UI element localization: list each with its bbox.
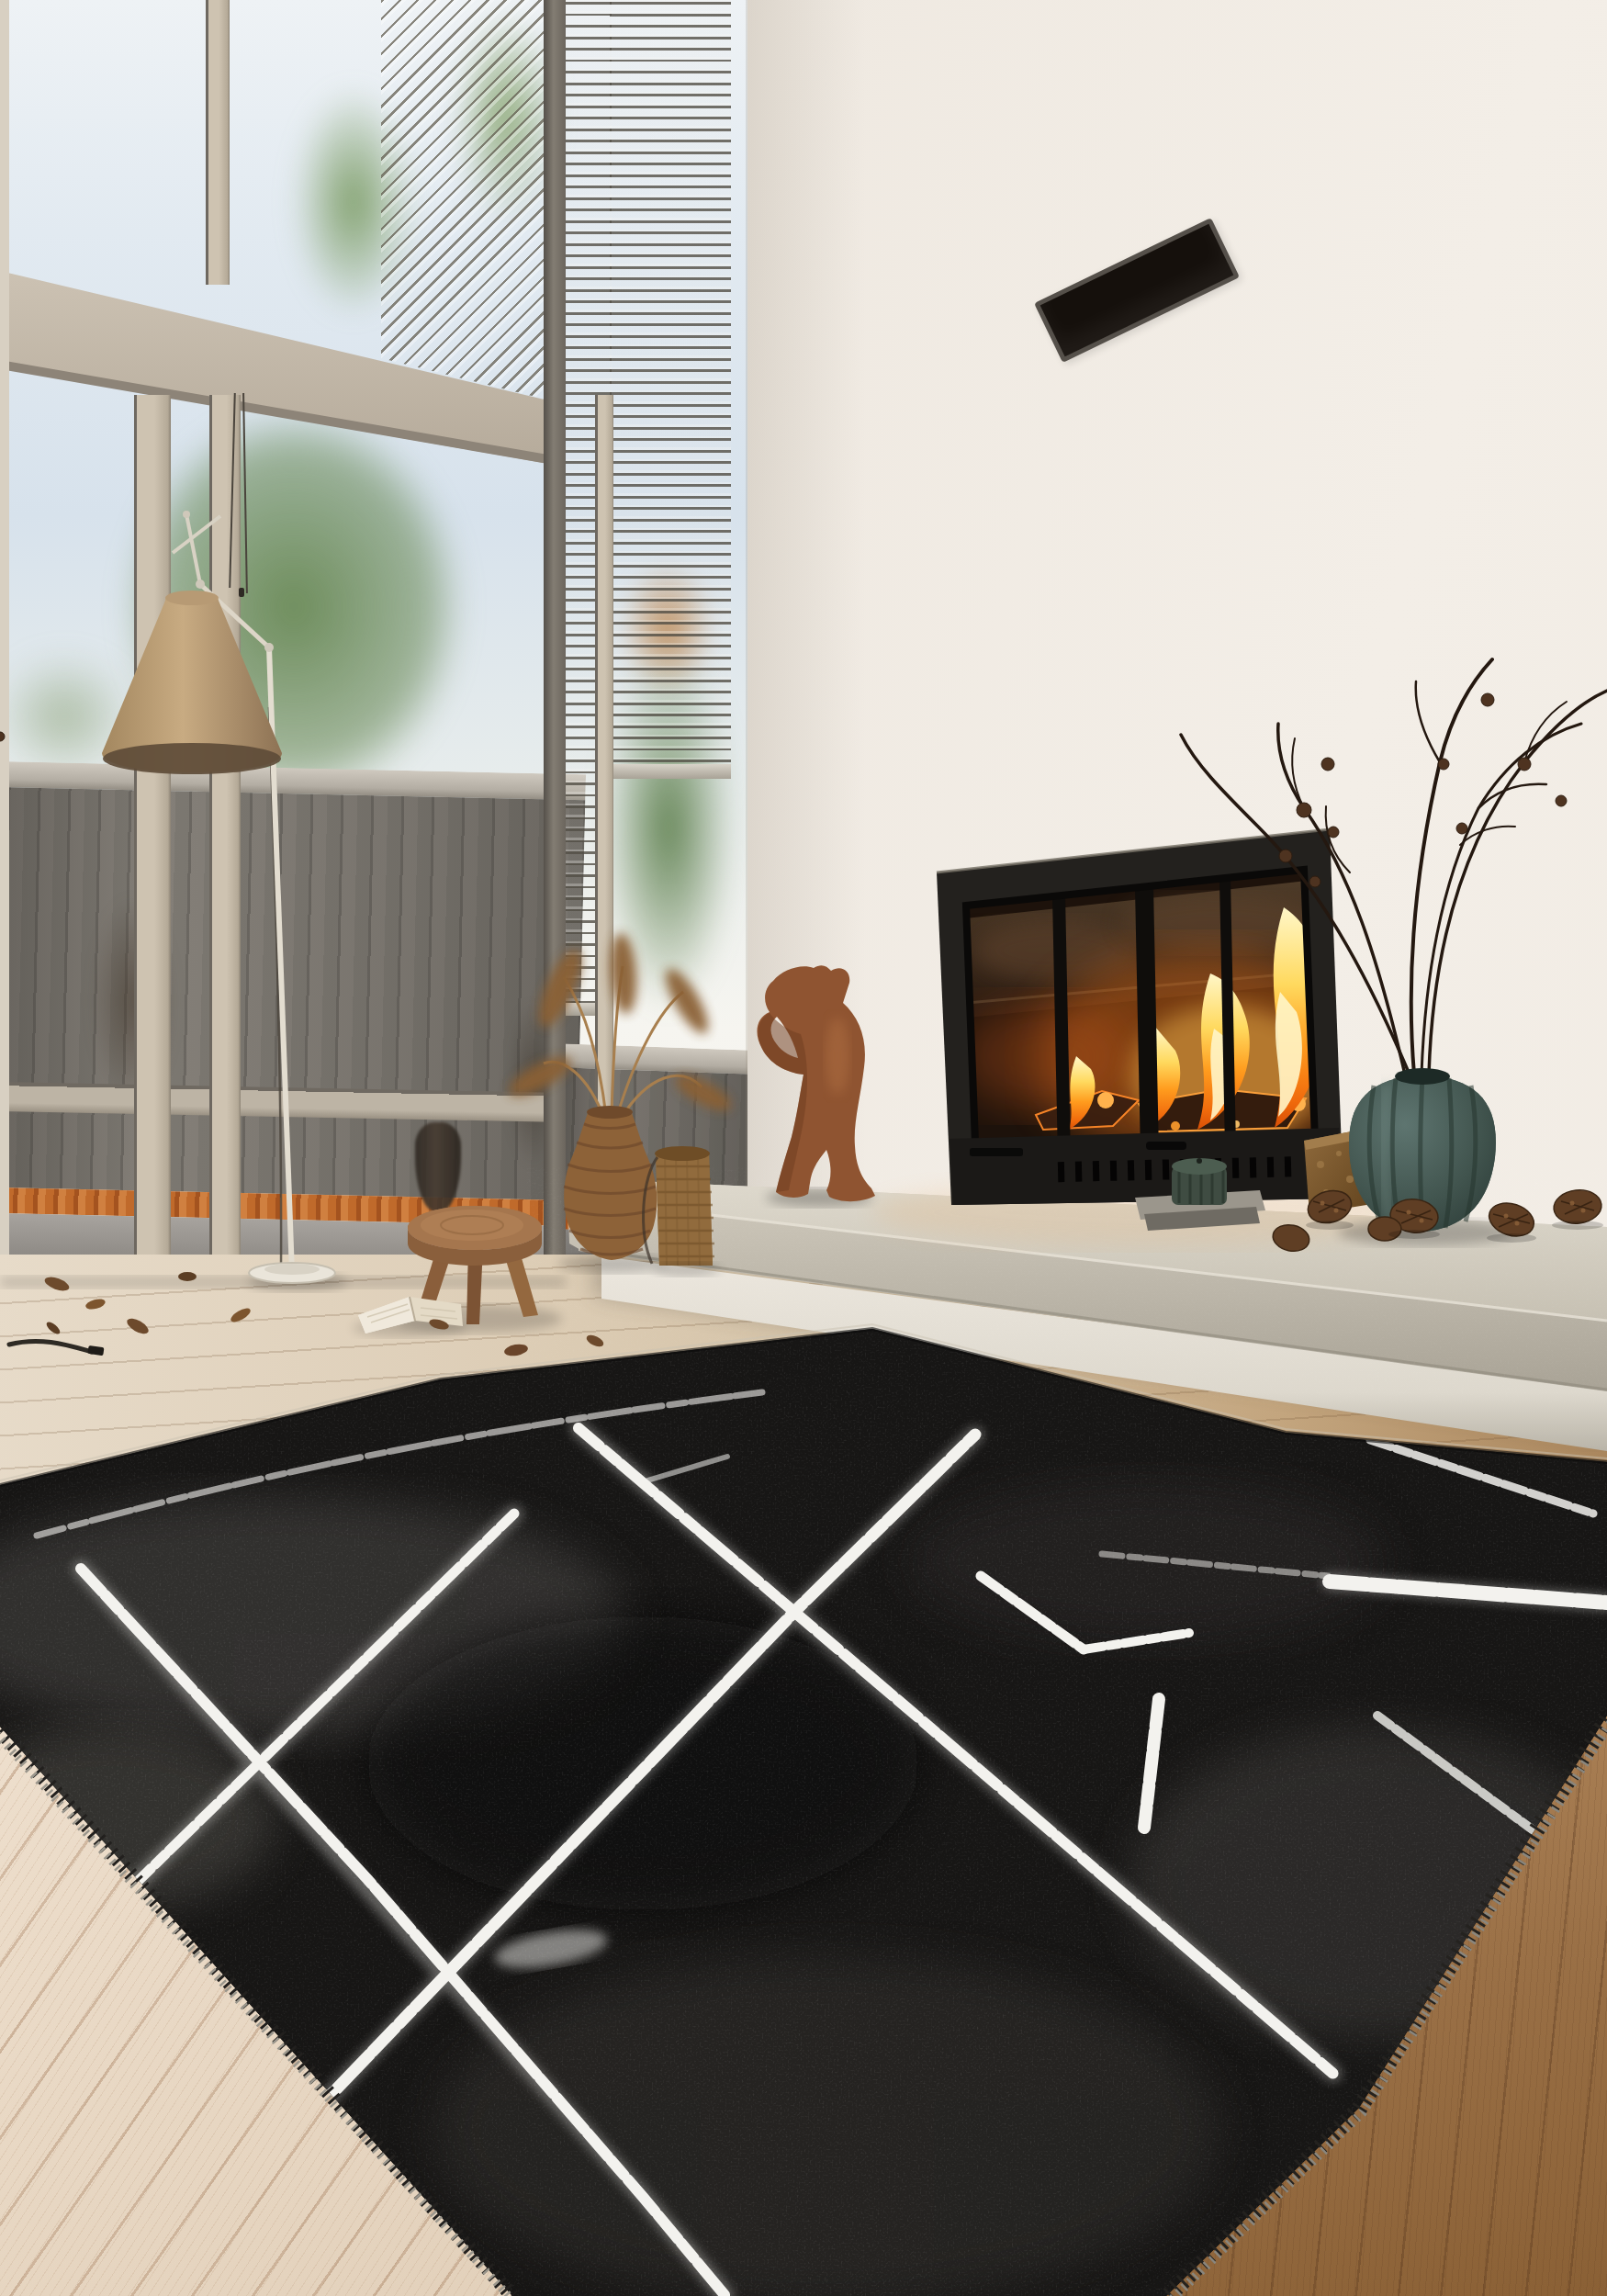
blind-cord-bead xyxy=(239,588,244,597)
fireplace-glass-bevel xyxy=(966,870,1315,1166)
stone-slab-2 xyxy=(1144,1207,1260,1231)
base-left-slot xyxy=(970,1148,1023,1156)
mullion-lower-b xyxy=(209,395,241,1278)
base-vent-slots xyxy=(1058,1156,1291,1182)
window-frame-right xyxy=(728,0,747,1282)
fireplace-frame-highlight xyxy=(937,829,1330,872)
flames xyxy=(1069,907,1362,1130)
fence-planks-right xyxy=(555,1067,747,1213)
dry-branches xyxy=(1181,659,1607,1075)
vase-highlight xyxy=(1382,1084,1390,1223)
blinds-diagonal-corner xyxy=(381,0,565,410)
teal-vase xyxy=(1349,1075,1496,1232)
fireplace-glass xyxy=(966,870,1315,1166)
candle xyxy=(1172,1158,1227,1205)
fireplace-insert xyxy=(937,829,1368,1205)
wall-corner-shade xyxy=(746,0,929,1286)
air-vent xyxy=(1034,218,1240,363)
mullion-lower-a xyxy=(134,395,171,1278)
fireplace-base xyxy=(950,1128,1343,1205)
fireplace-frame xyxy=(937,829,1343,1205)
window-wall xyxy=(0,0,747,1286)
glass-reflection-hills xyxy=(966,880,1315,1018)
mullion-narrow xyxy=(595,395,613,1278)
blinds-wide-pane xyxy=(610,0,731,768)
glass-mullions xyxy=(1052,879,1236,1160)
flame-cores xyxy=(1210,992,1302,1120)
mullion-upper xyxy=(206,0,230,285)
fireplace-glass-content xyxy=(960,880,1368,1162)
stone-slab xyxy=(1135,1190,1265,1220)
living-room-photo xyxy=(0,0,1607,2296)
burning-logs xyxy=(1036,1089,1306,1131)
candle-group xyxy=(1135,1158,1265,1231)
hearth-glow xyxy=(872,1179,1423,1245)
base-handle xyxy=(1146,1142,1186,1150)
blind-bottom-rail-wide xyxy=(610,764,731,779)
wooden-box xyxy=(1304,1130,1366,1214)
vase-flutes xyxy=(1369,1075,1476,1231)
window-frame-left-sliver xyxy=(0,0,9,1282)
vase-mouth xyxy=(1395,1068,1450,1085)
teal-vase xyxy=(1349,1075,1496,1232)
corner-post xyxy=(544,0,566,1282)
garden-fence-right xyxy=(553,1043,747,1286)
fire-glow xyxy=(1038,951,1368,1162)
